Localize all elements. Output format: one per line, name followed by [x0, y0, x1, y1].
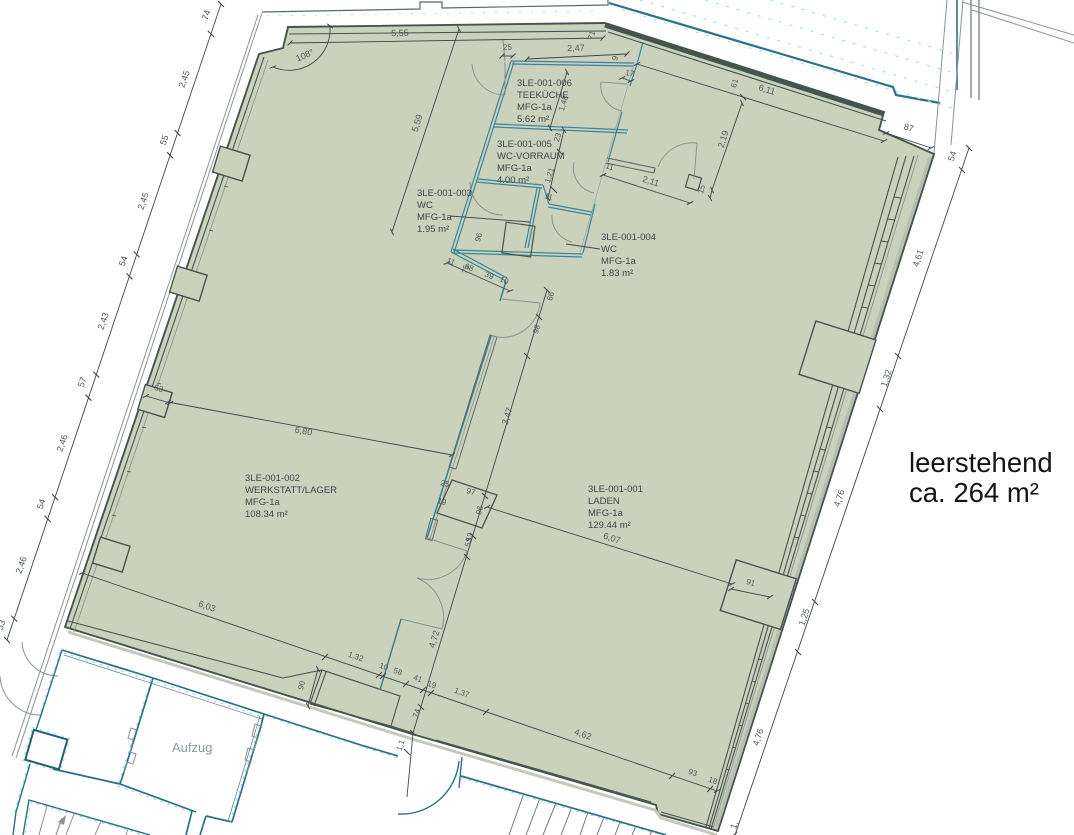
svg-text:leerstehend: leerstehend: [909, 447, 1053, 478]
svg-text:TEEKÜCHE: TEEKÜCHE: [517, 90, 569, 101]
svg-text:WERKSTATT/LAGER: WERKSTATT/LAGER: [245, 485, 337, 496]
svg-text:4.00 m²: 4.00 m²: [497, 175, 529, 186]
svg-text:3LE-001-003: 3LE-001-003: [417, 188, 472, 199]
svg-text:3LE-001-004: 3LE-001-004: [601, 232, 656, 243]
svg-text:3LE-001-006: 3LE-001-006: [517, 78, 572, 89]
svg-text:1.95 m²: 1.95 m²: [417, 224, 449, 235]
svg-text:WC: WC: [601, 244, 617, 255]
svg-text:MFG-1a: MFG-1a: [601, 256, 637, 267]
svg-text:MFG-1a: MFG-1a: [517, 102, 553, 113]
svg-text:MFG-1a: MFG-1a: [245, 497, 281, 508]
svg-text:ca. 264 m²: ca. 264 m²: [909, 477, 1039, 508]
svg-text:25: 25: [503, 43, 513, 52]
svg-text:Aufzug: Aufzug: [172, 740, 212, 755]
svg-text:3LE-001-005: 3LE-001-005: [497, 139, 552, 150]
svg-text:MFG-1a: MFG-1a: [497, 163, 533, 174]
svg-text:5,55: 5,55: [391, 28, 409, 38]
svg-text:108.34 m²: 108.34 m²: [245, 509, 288, 520]
svg-text:3LE-001-001: 3LE-001-001: [588, 484, 643, 495]
svg-text:129.44 m²: 129.44 m²: [588, 520, 631, 531]
svg-text:1.83 m²: 1.83 m²: [601, 268, 633, 279]
svg-text:5.62 m²: 5.62 m²: [517, 114, 549, 125]
svg-text:3LE-001-002: 3LE-001-002: [245, 473, 300, 484]
svg-text:MFG-1a: MFG-1a: [588, 508, 624, 519]
svg-text:WC: WC: [417, 200, 433, 211]
svg-text:MFG-1a: MFG-1a: [417, 212, 453, 223]
svg-text:WC-VORRAUM: WC-VORRAUM: [497, 151, 565, 162]
svg-text:2,47: 2,47: [567, 43, 585, 54]
svg-text:LADEN: LADEN: [588, 496, 620, 507]
